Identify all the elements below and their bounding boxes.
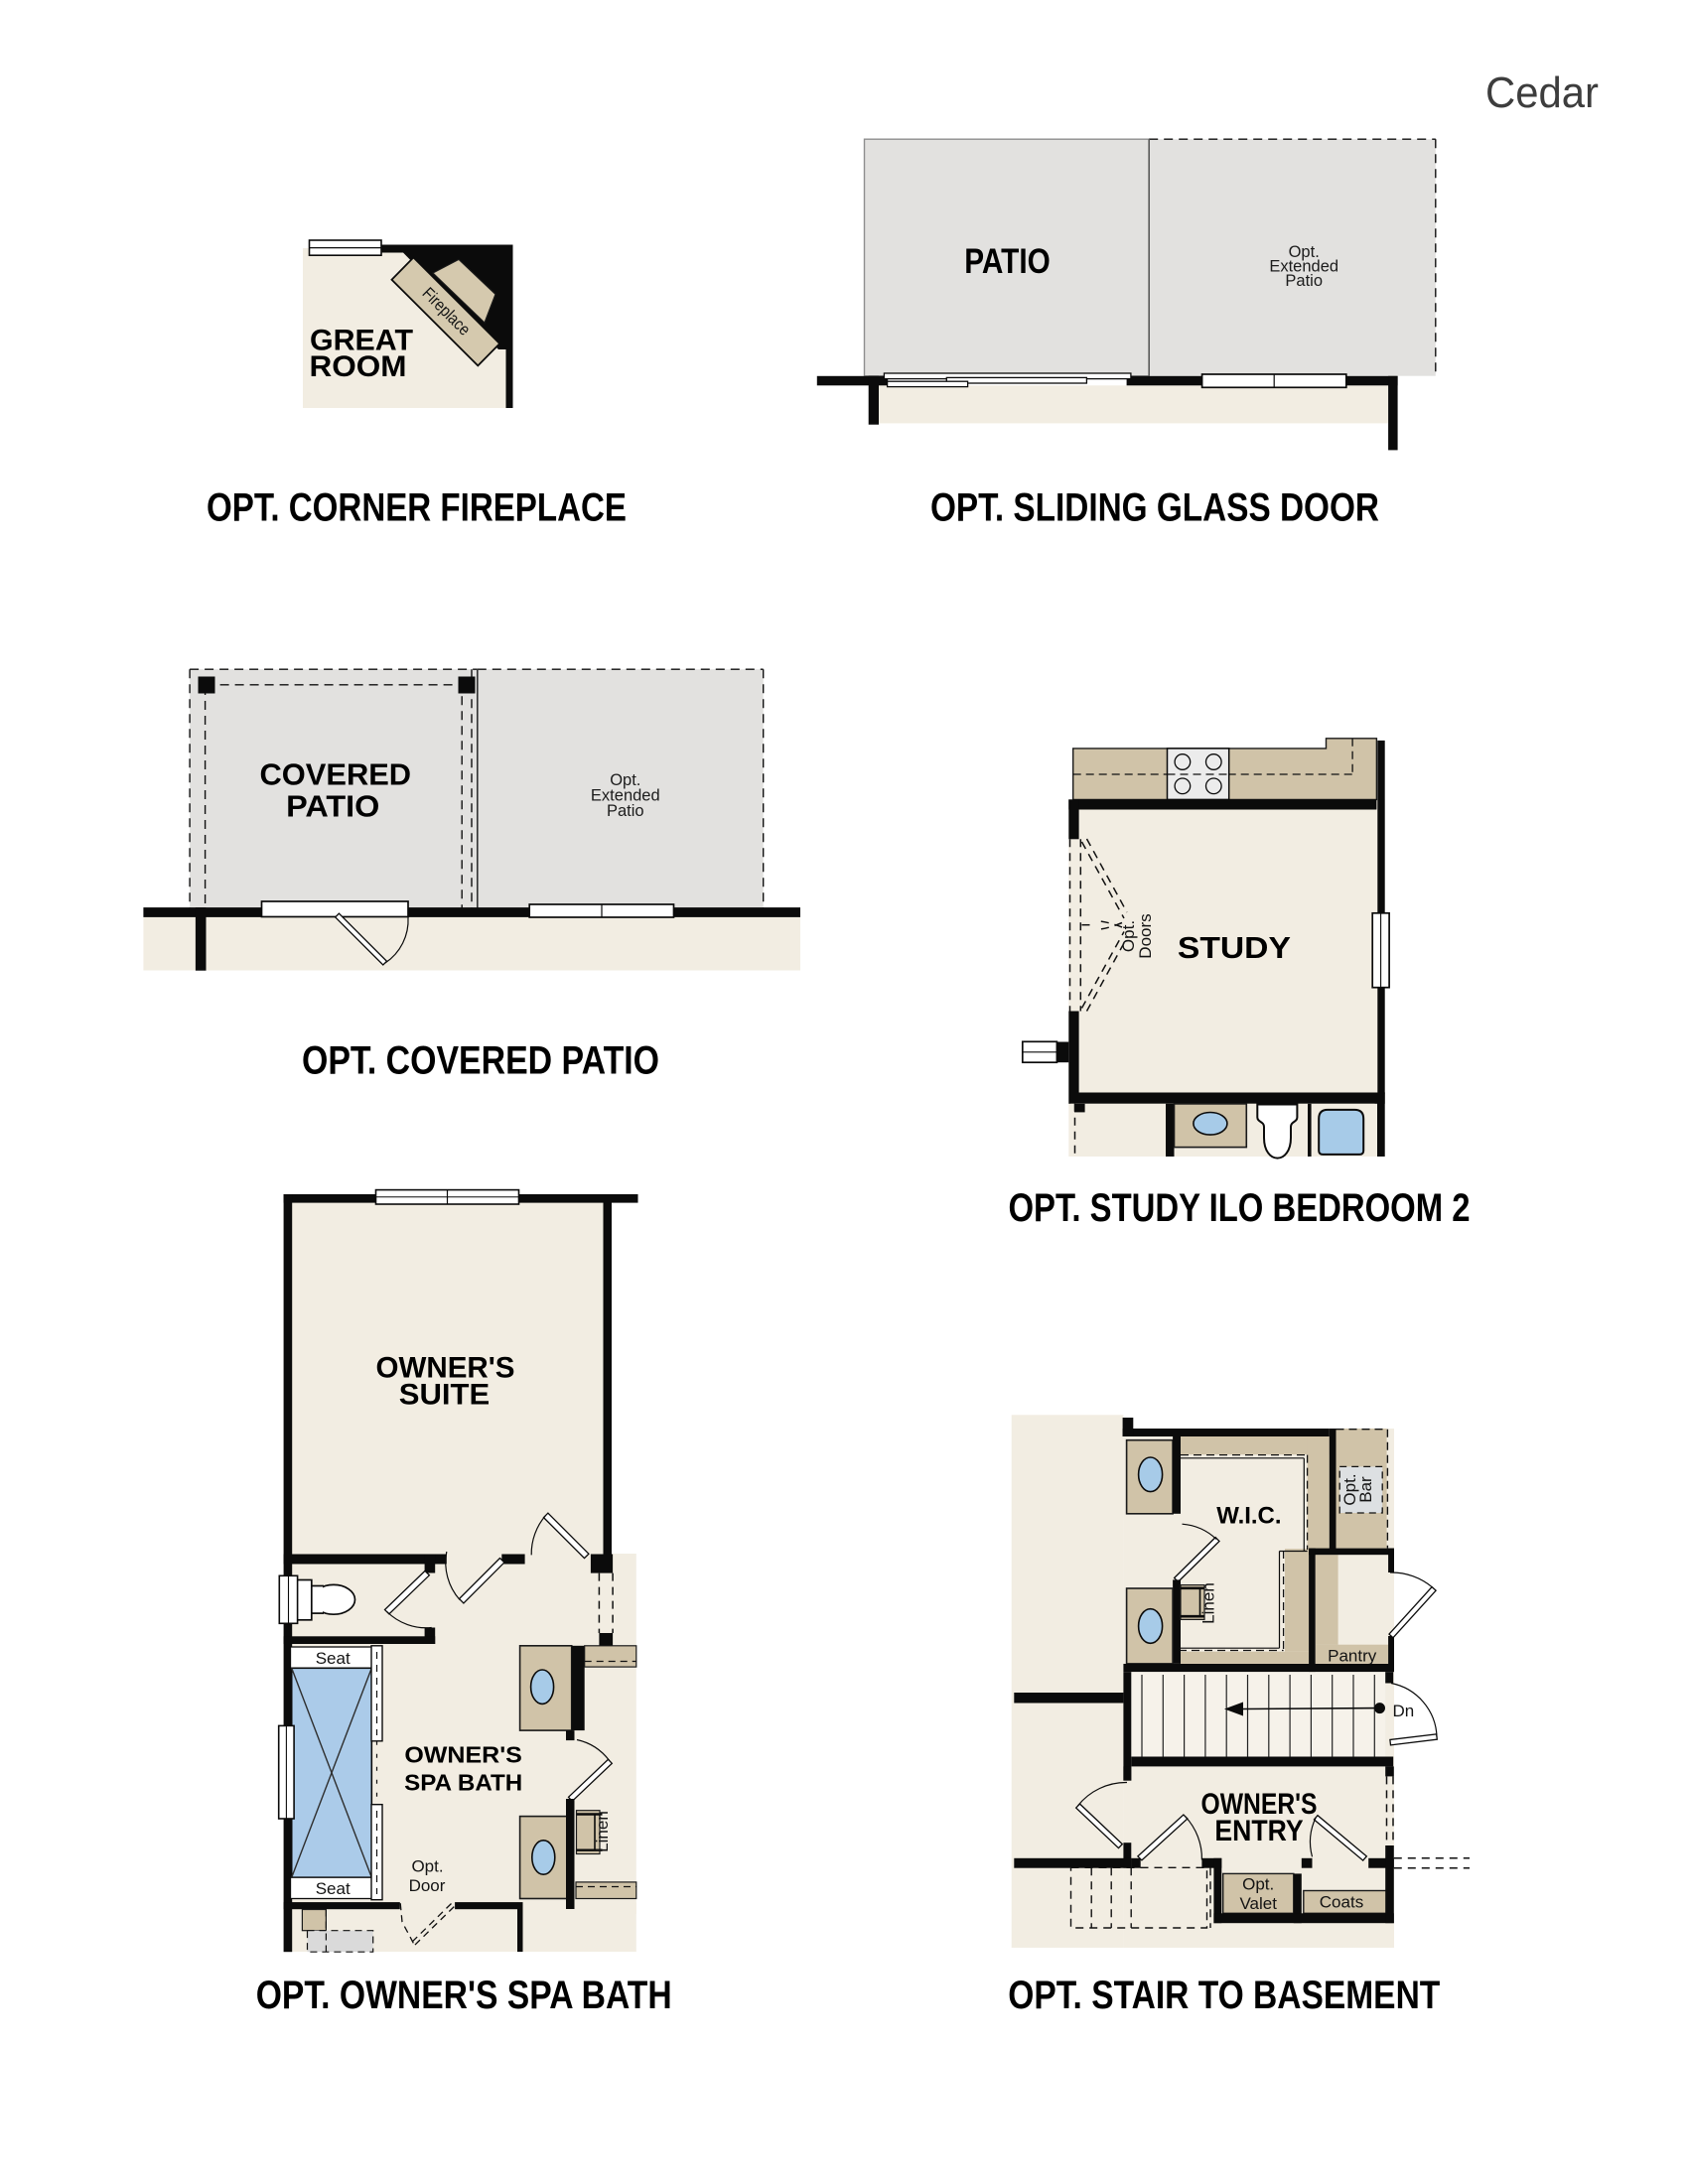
svg-text:Door: Door bbox=[409, 1876, 446, 1895]
svg-text:Patio: Patio bbox=[1285, 272, 1323, 290]
svg-text:Cedar: Cedar bbox=[1485, 68, 1599, 117]
svg-text:Seat: Seat bbox=[316, 1649, 351, 1668]
svg-text:Coats: Coats bbox=[1320, 1893, 1363, 1912]
svg-text:OPT. OWNER'S SPA BATH: OPT. OWNER'S SPA BATH bbox=[256, 1974, 672, 2017]
svg-text:Linen: Linen bbox=[593, 1811, 612, 1852]
svg-text:Bar: Bar bbox=[1356, 1476, 1375, 1503]
svg-text:COVERED: COVERED bbox=[260, 757, 412, 792]
svg-text:STUDY: STUDY bbox=[1178, 930, 1291, 965]
svg-text:OPT. CORNER FIREPLACE: OPT. CORNER FIREPLACE bbox=[207, 486, 627, 530]
svg-text:Linen: Linen bbox=[1199, 1582, 1218, 1624]
svg-text:Doors: Doors bbox=[1136, 913, 1155, 958]
svg-text:Patio: Patio bbox=[607, 802, 644, 820]
svg-text:OPT. STUDY ILO BEDROOM 2: OPT. STUDY ILO BEDROOM 2 bbox=[1009, 1186, 1471, 1230]
svg-text:SPA BATH: SPA BATH bbox=[404, 1770, 522, 1796]
svg-text:PATIO: PATIO bbox=[286, 788, 379, 823]
svg-text:Opt.: Opt. bbox=[1242, 1875, 1274, 1894]
svg-text:OWNER'S: OWNER'S bbox=[404, 1742, 522, 1768]
svg-text:PATIO: PATIO bbox=[964, 242, 1051, 281]
svg-text:OPT. COVERED PATIO: OPT. COVERED PATIO bbox=[302, 1039, 659, 1083]
svg-text:OPT. SLIDING GLASS DOOR: OPT. SLIDING GLASS DOOR bbox=[930, 486, 1379, 530]
svg-text:Dn: Dn bbox=[1393, 1702, 1415, 1720]
svg-text:SUITE: SUITE bbox=[399, 1379, 491, 1412]
svg-text:Seat: Seat bbox=[316, 1879, 351, 1898]
svg-text:Pantry: Pantry bbox=[1328, 1647, 1377, 1666]
svg-text:W.I.C.: W.I.C. bbox=[1216, 1503, 1281, 1530]
svg-text:OPT. STAIR TO BASEMENT: OPT. STAIR TO BASEMENT bbox=[1008, 1974, 1440, 2017]
svg-text:ENTRY: ENTRY bbox=[1214, 1815, 1303, 1847]
svg-text:ROOM: ROOM bbox=[310, 350, 407, 383]
svg-text:Valet: Valet bbox=[1239, 1894, 1277, 1913]
svg-text:Opt.: Opt. bbox=[411, 1857, 443, 1876]
